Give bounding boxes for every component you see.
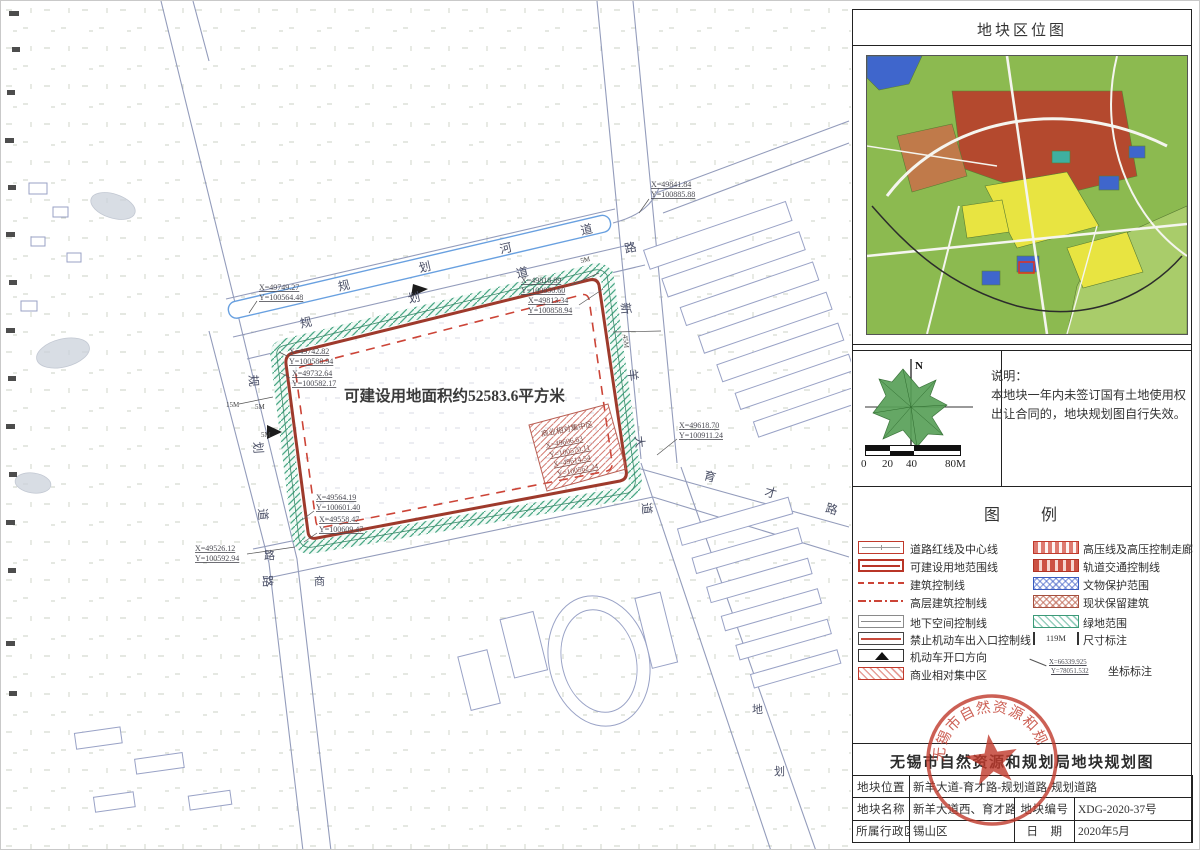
- svg-text:Y=100582.17: Y=100582.17: [292, 379, 336, 388]
- svg-text:Y=100885.88: Y=100885.88: [651, 190, 695, 199]
- svg-text:Y=100858.94: Y=100858.94: [528, 306, 572, 315]
- legend-swatch-road-redline: [858, 541, 904, 554]
- north-label: N: [915, 360, 923, 372]
- legend-label: 尺寸标注: [1083, 632, 1127, 648]
- road-label-char: 划: [774, 765, 785, 778]
- svg-text:X=49813.34: X=49813.34: [528, 296, 568, 305]
- legend-coord-y: Y=78051.532: [1051, 668, 1089, 676]
- legend-label: 道路红线及中心线: [910, 541, 998, 557]
- scale-label: 20: [882, 458, 893, 470]
- svg-text:X=49618.70: X=49618.70: [679, 421, 719, 430]
- field-label-code: 地块编号: [1015, 798, 1075, 820]
- legend-title: 图 例: [852, 501, 1192, 525]
- field-label-name: 地块名称: [853, 798, 910, 820]
- svg-text:5M: 5M: [261, 431, 272, 439]
- svg-text:Y=100911.24: Y=100911.24: [679, 431, 723, 440]
- svg-text:X=49526.12: X=49526.12: [195, 544, 235, 553]
- svg-text:X=49841.84: X=49841.84: [651, 180, 691, 189]
- field-value-code: XDG-2020-37号: [1075, 798, 1193, 820]
- legend-label: 坐标标注: [1108, 663, 1152, 679]
- field-value-district: 锡山区: [910, 820, 1015, 842]
- legend-swatch-highrise-control: [858, 595, 904, 608]
- scale-label: 0: [861, 458, 867, 470]
- svg-text:X=49564.19: X=49564.19: [316, 493, 356, 502]
- legend-label: 可建设用地范围线: [910, 559, 998, 575]
- notes-title: 说明：: [991, 367, 1187, 386]
- svg-text:Y=100609.47: Y=100609.47: [319, 525, 363, 534]
- legend-swatch-underground-control: [858, 615, 904, 628]
- svg-text:Y=100601.40: Y=100601.40: [316, 503, 360, 512]
- legend-label: 高层建筑控制线: [910, 595, 987, 611]
- legend-label: 轨道交通控制线: [1083, 559, 1160, 575]
- parcel-map: 商业相对集中区 X=49606.63 Y=100570.11 X=49614.5…: [1, 1, 851, 850]
- legend-label: 地下空间控制线: [910, 615, 987, 631]
- bureau-title: 无锡市自然资源和规划局地块规划图: [852, 751, 1192, 772]
- legend-swatch-no-vehicle-access: [858, 632, 904, 645]
- legend-label: 现状保留建筑: [1083, 595, 1149, 611]
- svg-text:Y=100850.60: Y=100850.60: [521, 286, 565, 295]
- legend-swatch-high-voltage: [1033, 541, 1079, 554]
- legend-label: 建筑控制线: [910, 577, 965, 593]
- field-label-date: 日 期: [1015, 820, 1075, 842]
- field-label-district: 所属行政区: [853, 820, 910, 842]
- legend-swatch-dimension: 119M: [1033, 632, 1079, 645]
- legend-swatch-vehicle-opening: [858, 649, 904, 662]
- scale-bar: [865, 445, 961, 456]
- svg-text:X=49749.27: X=49749.27: [259, 283, 299, 292]
- svg-text:X=49558.47: X=49558.47: [319, 515, 359, 524]
- field-label-location: 地块位置: [853, 776, 910, 798]
- svg-text:5M: 5M: [255, 403, 266, 411]
- svg-text:Y=100564.48: Y=100564.48: [259, 293, 303, 302]
- legend-swatch-building-control: [858, 577, 904, 590]
- legend-label: 商业相对集中区: [910, 667, 987, 683]
- notes-line2: 出让合同的，地块规划图自行失效。: [991, 405, 1187, 424]
- road-label-char: 地: [752, 703, 763, 716]
- svg-text:15M: 15M: [226, 401, 240, 409]
- field-value-location: 新羊大道-育才路-规划道路-规划道路: [910, 776, 1193, 798]
- legend-swatch-commercial-area: [858, 667, 904, 680]
- legend-swatch-green-space: [1033, 615, 1079, 628]
- svg-text:Y=100588.94: Y=100588.94: [289, 357, 333, 366]
- svg-text:X=49732.64: X=49732.64: [292, 369, 332, 378]
- legend-label: 绿地范围: [1083, 615, 1127, 631]
- field-value-date: 2020年5月: [1075, 820, 1193, 842]
- title-block-table: 地块位置 新羊大道-育才路-规划道路-规划道路 地块名称 新羊大道西、育才路北地…: [852, 775, 1193, 843]
- legend-label: 机动车开口方向: [910, 649, 987, 665]
- road-label-char: 路: [264, 549, 275, 562]
- legend-swatch-relic-protection: [1033, 577, 1079, 590]
- region-map: [866, 55, 1188, 335]
- road-label-char: 商: [314, 574, 325, 588]
- legend-swatch-buildable-boundary: [858, 559, 904, 572]
- notes-line1: 本地块一年内未签订国有土地使用权: [991, 386, 1187, 405]
- compass-icon: N: [859, 355, 979, 457]
- scale-label: 40: [906, 458, 917, 470]
- notes-block: 说明： 本地块一年内未签订国有土地使用权 出让合同的，地块规划图自行失效。: [991, 367, 1187, 424]
- scale-label: 80M: [945, 458, 966, 470]
- legend-coord-x: X=66339.925: [1049, 659, 1087, 667]
- legend-label: 文物保护范围: [1083, 577, 1149, 593]
- svg-text:Y=100592.94: Y=100592.94: [195, 554, 239, 563]
- svg-text:X=49742.82: X=49742.82: [289, 347, 329, 356]
- plan-sheet: 商业相对集中区 X=49606.63 Y=100570.11 X=49614.5…: [0, 0, 1200, 850]
- legend-swatch-retained-building: [1033, 595, 1079, 608]
- field-value-name: 新羊大道西、育才路北地块: [910, 798, 1015, 820]
- region-map-title: 地块区位图: [852, 19, 1192, 40]
- legend-label: 禁止机动车出入口控制线: [910, 632, 1031, 648]
- legend-label: 高压线及高压控制走廊: [1083, 541, 1193, 557]
- svg-text:45M: 45M: [621, 334, 630, 349]
- legend-swatch-rail-transit: [1033, 559, 1079, 572]
- parcel-area-label: 可建设用地面积约52583.6平方米: [344, 386, 565, 405]
